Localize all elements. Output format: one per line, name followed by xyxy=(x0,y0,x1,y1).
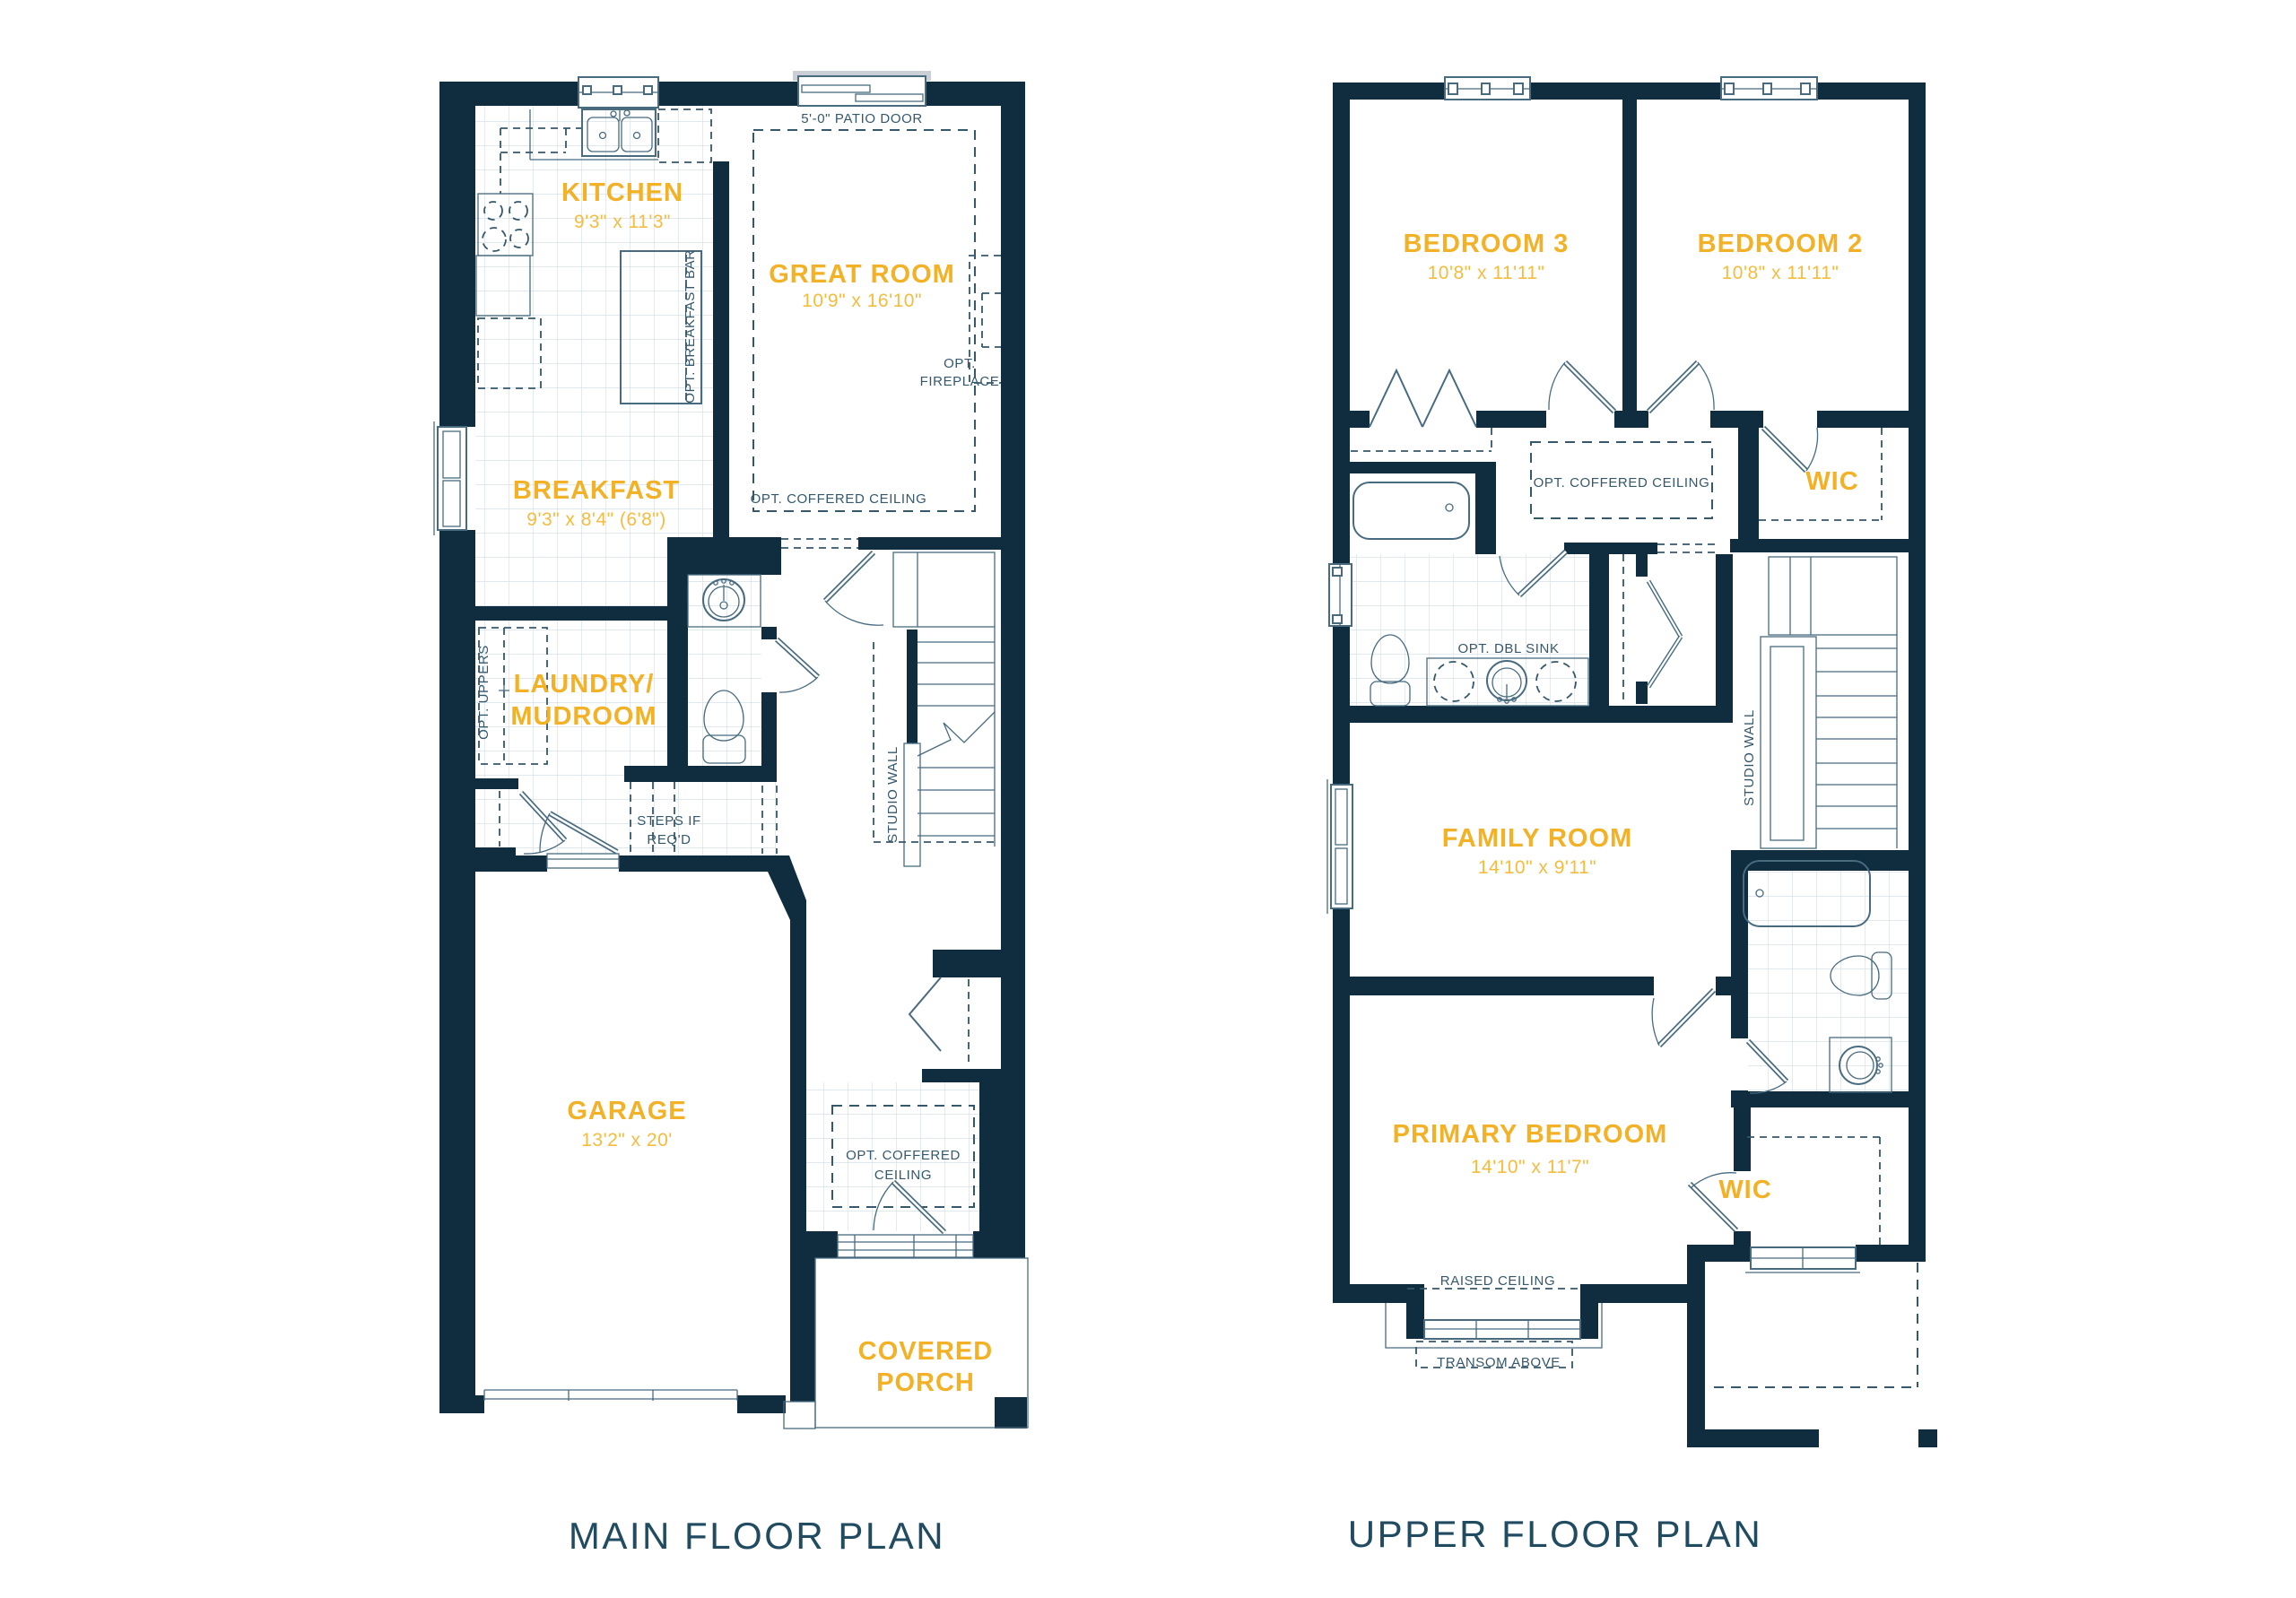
svg-text:OPT. UPPERS: OPT. UPPERS xyxy=(476,645,491,740)
svg-text:PRIMARY BEDROOM: PRIMARY BEDROOM xyxy=(1393,1120,1668,1149)
svg-text:STEPS IF: STEPS IF xyxy=(637,813,700,829)
svg-text:REQ'D: REQ'D xyxy=(647,832,691,847)
svg-text:OPT. DBL SINK: OPT. DBL SINK xyxy=(1457,641,1559,656)
svg-text:PORCH: PORCH xyxy=(876,1368,975,1397)
svg-text:5'-0" PATIO DOOR: 5'-0" PATIO DOOR xyxy=(801,111,923,126)
svg-text:GREAT ROOM: GREAT ROOM xyxy=(769,260,955,289)
svg-text:RAISED CEILING: RAISED CEILING xyxy=(1440,1273,1555,1289)
svg-text:13'2" x 20': 13'2" x 20' xyxy=(581,1130,673,1151)
svg-text:WIC: WIC xyxy=(1718,1176,1771,1204)
svg-text:MAIN FLOOR PLAN: MAIN FLOOR PLAN xyxy=(569,1515,945,1557)
svg-text:BEDROOM 3: BEDROOM 3 xyxy=(1404,230,1570,258)
svg-text:10'8" x 11'11": 10'8" x 11'11" xyxy=(1722,263,1839,283)
svg-text:OPT. BREAKFAST BAR: OPT. BREAKFAST BAR xyxy=(683,249,698,403)
svg-text:TRANSOM ABOVE: TRANSOM ABOVE xyxy=(1437,1355,1561,1370)
svg-text:14'10" x 11'7": 14'10" x 11'7" xyxy=(1471,1157,1589,1177)
svg-text:OPT.: OPT. xyxy=(944,356,976,371)
svg-text:KITCHEN: KITCHEN xyxy=(561,178,683,207)
svg-text:UPPER FLOOR PLAN: UPPER FLOOR PLAN xyxy=(1348,1513,1762,1555)
svg-text:14'10" x 9'11": 14'10" x 9'11" xyxy=(1478,857,1596,878)
svg-text:BREAKFAST: BREAKFAST xyxy=(513,476,680,505)
svg-text:OPT. COFFERED: OPT. COFFERED xyxy=(846,1148,961,1163)
svg-text:FAMILY ROOM: FAMILY ROOM xyxy=(1442,824,1632,853)
svg-text:MUDROOM: MUDROOM xyxy=(510,702,657,731)
svg-text:CEILING: CEILING xyxy=(874,1168,932,1183)
svg-text:10'8" x 11'11": 10'8" x 11'11" xyxy=(1428,263,1545,283)
svg-text:LAUNDRY/: LAUNDRY/ xyxy=(514,670,655,699)
svg-text:OPT. COFFERED CEILING: OPT. COFFERED CEILING xyxy=(1534,475,1710,491)
svg-text:GARAGE: GARAGE xyxy=(567,1097,686,1125)
svg-text:10'9" x 16'10": 10'9" x 16'10" xyxy=(802,291,922,311)
svg-text:FIREPLACE: FIREPLACE xyxy=(920,374,1000,389)
svg-text:9'3" x 8'4" (6'8"): 9'3" x 8'4" (6'8") xyxy=(526,509,665,530)
svg-text:BEDROOM 2: BEDROOM 2 xyxy=(1698,230,1864,258)
svg-text:COVERED: COVERED xyxy=(858,1337,993,1366)
svg-text:STUDIO WALL: STUDIO WALL xyxy=(1742,709,1757,806)
svg-text:9'3" x 11'3": 9'3" x 11'3" xyxy=(574,212,671,232)
svg-text:OPT. COFFERED CEILING: OPT. COFFERED CEILING xyxy=(751,491,927,507)
svg-text:WIC: WIC xyxy=(1805,467,1858,496)
svg-text:STUDIO WALL: STUDIO WALL xyxy=(885,746,900,843)
